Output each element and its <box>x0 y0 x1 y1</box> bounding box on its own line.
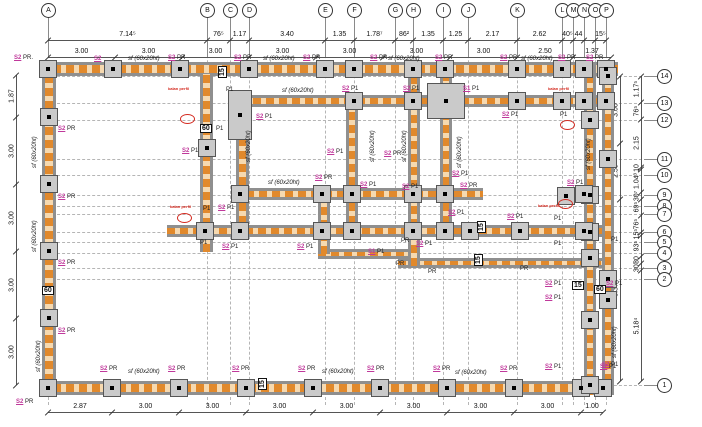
annotation-dark: P1 <box>226 87 233 93</box>
annotation-sf: sf (60x20ht) <box>263 56 295 62</box>
annotation-combo: S2 PR <box>384 151 401 157</box>
annotation-sf: sf (60x20ht) <box>521 56 553 62</box>
column-dot <box>47 182 51 186</box>
dim-value: 2.62 <box>533 31 547 38</box>
mark-series: S2 <box>182 148 189 154</box>
annotation-combo: S2 P1 <box>327 149 343 155</box>
annotation-combo: S2 P1 <box>402 184 418 190</box>
dim-value: 3.00 <box>276 48 290 55</box>
grid-line-G <box>395 20 396 405</box>
column-dot <box>205 146 209 150</box>
column-dot <box>515 99 519 103</box>
grid-leader-13 <box>644 103 657 104</box>
annotation-sf: sf (60x20ht) <box>402 130 408 162</box>
column-dot <box>238 113 242 117</box>
mark-series: S2 <box>403 86 410 92</box>
column-dot <box>411 67 415 71</box>
dim-line-right_b <box>641 76 642 381</box>
grid-bubble-I: I <box>436 3 451 18</box>
dim-line-bottom <box>48 412 603 413</box>
annotation-combo: S2 PR <box>315 175 332 181</box>
column-dot <box>244 386 248 390</box>
dim-value: 69⁵ <box>634 202 641 213</box>
annotation-sf: sf (60x20ht) <box>246 130 252 162</box>
column-dot <box>445 386 449 390</box>
revision-mark <box>180 114 195 124</box>
grid-bubble-G: G <box>388 3 403 18</box>
annotation-combo: S2 P1 <box>502 112 518 118</box>
revision-mark <box>177 213 192 223</box>
annotation-combo: S2 PR <box>460 183 477 189</box>
grid-bubble-K: K <box>510 3 525 18</box>
mark-series: S2 <box>168 55 175 61</box>
annotation-dark: P1 <box>203 206 210 212</box>
grid-line-2 <box>42 279 652 280</box>
grid-bubble-14: 14 <box>657 69 672 84</box>
annotation-combo: S2 PR <box>586 55 603 61</box>
annotation-box: 15 <box>258 378 267 390</box>
annotation-sf: sf (60x20ht) <box>268 180 300 186</box>
column-dot <box>588 256 592 260</box>
mark-series: S2 <box>298 366 305 372</box>
grid-leader-4 <box>644 253 657 254</box>
dim-value: 1.25 <box>449 31 463 38</box>
mark-series: S2 <box>360 182 367 188</box>
column-dot <box>46 386 50 390</box>
annotation-combo: S2 PR. <box>14 55 33 61</box>
dim-value: 76⁵ <box>634 105 641 116</box>
mark-series: S2 <box>460 183 467 189</box>
column-dot <box>47 115 51 119</box>
grid-bubble-2: 2 <box>657 272 672 287</box>
mark-series: S2 <box>435 55 442 61</box>
annotation-combo: S2 PR <box>58 260 75 266</box>
dim-value: 1.00 <box>585 403 599 410</box>
dim-value: 30⁷ <box>634 190 641 200</box>
grid-bubble-7: 7 <box>657 207 672 222</box>
dim-value: 3.00 <box>139 403 153 410</box>
column-dot <box>46 67 50 71</box>
dim-tick <box>600 409 606 415</box>
dim-value: 3.40 <box>280 31 294 38</box>
column-dot <box>588 318 592 322</box>
grid-bubble-A: A <box>41 3 56 18</box>
column-dot <box>443 67 447 71</box>
dim-value: 1.37 <box>585 48 599 55</box>
grid-bubble-D: D <box>242 3 257 18</box>
annotation-combo: S2 P1 <box>403 86 419 92</box>
annotation-combo: S2 PR <box>370 55 387 61</box>
column-dot <box>606 157 610 161</box>
annotation-sf: sf (60x20ht) <box>370 130 376 162</box>
annotation-pink: S2 <box>94 56 101 62</box>
column-dot <box>518 229 522 233</box>
beam <box>318 249 410 259</box>
annotation-combo: S2 P1 <box>545 295 561 301</box>
dim-tick <box>13 382 19 388</box>
annotation-box: 15 <box>477 221 486 233</box>
column-dot <box>350 229 354 233</box>
grid-leader-14 <box>644 76 657 77</box>
mark-series: S2 <box>14 55 21 61</box>
dim-value: 3.00 <box>410 48 424 55</box>
annotation-combo: S2 P1 <box>360 182 376 188</box>
column-dot <box>560 67 564 71</box>
annotation-combo: S2 P1 <box>256 114 272 120</box>
column-dot <box>512 386 516 390</box>
mark-series: S2 <box>232 366 239 372</box>
dim-value: 1.35 <box>333 31 347 38</box>
grid-bubble-11: 11 <box>657 152 672 167</box>
annotation-combo: S2 P1 <box>416 241 432 247</box>
dim-value: 93⁵ <box>634 240 641 251</box>
annotation-combo: S2 PR <box>58 194 75 200</box>
column-dot <box>604 99 608 103</box>
annotation-sf: sf (60x20ht) <box>282 88 314 94</box>
grid-leader-8 <box>644 206 657 207</box>
grid-line-C <box>230 20 231 405</box>
column-dot <box>560 99 564 103</box>
mark-series: S2 <box>16 399 23 405</box>
column-dot <box>411 192 415 196</box>
annotation-combo: S2 PR <box>303 55 320 61</box>
mark-series: S2 <box>168 366 175 372</box>
dim-value: 1.17⁵ <box>634 81 641 98</box>
dim-value: 2.50 <box>538 48 552 55</box>
dim-value: 2.15 <box>634 136 641 150</box>
column-dot <box>588 230 592 234</box>
annotation-combo: S2 PR <box>168 55 185 61</box>
annotation-dark: P1 <box>554 241 561 247</box>
column-dot <box>110 386 114 390</box>
grid-bubble-E: E <box>318 3 333 18</box>
column-dot <box>247 67 251 71</box>
column-dot <box>47 316 51 320</box>
annotation-combo: S2 PR <box>433 366 450 372</box>
annotation-dark: P1 <box>554 216 561 222</box>
mark-series: S2 <box>370 55 377 61</box>
mark-series: S2 <box>452 171 459 177</box>
annotation-combo: S2 P1 <box>182 148 198 154</box>
mark-series: S2 <box>218 205 225 211</box>
annotation-combo: S2 PR <box>435 55 452 61</box>
dim-value: 3.00 <box>340 403 354 410</box>
annotation-box: 15 <box>218 66 227 78</box>
column-dot <box>47 249 51 253</box>
annotation-combo: S2 P1 <box>545 281 561 287</box>
column-dot <box>177 386 181 390</box>
column-dot <box>178 67 182 71</box>
annotation-box: 15 <box>474 254 483 266</box>
grid-bubble-4: 4 <box>657 246 672 261</box>
dim-value: 1.17 <box>233 31 247 38</box>
mark-series: S2 <box>448 210 455 216</box>
dim-value: 3.00 <box>9 278 16 292</box>
column-dot <box>378 386 382 390</box>
grid-leader-10 <box>644 175 657 176</box>
beam <box>40 381 612 395</box>
column-dot <box>352 99 356 103</box>
dim-value: 1.87 <box>9 89 16 103</box>
dim-value: 3.00 <box>75 48 89 55</box>
dim-value: 44 <box>575 31 583 38</box>
mark-series: S2 <box>315 175 322 181</box>
mark-series: S2 <box>545 295 552 301</box>
column-dot <box>111 67 115 71</box>
annotation-sf: sf (60x20ht) <box>32 220 38 252</box>
grid-bubble-10: 10 <box>657 168 672 183</box>
beam <box>346 95 358 237</box>
dim-value: 3.00 <box>9 144 16 158</box>
annotation-combo: S2 P1 <box>222 244 238 250</box>
grid-leader-9 <box>644 195 657 196</box>
annotation-sf: sf (60x20ht) <box>128 369 160 375</box>
dim-value: 3.00 <box>407 403 421 410</box>
grid-line-J <box>468 20 469 405</box>
formwork-plan-canvas: ABCDEFGHIJKLMNOP14131211109876543217.14⁵… <box>0 0 702 427</box>
annotation-combo: S2 PR <box>500 366 517 372</box>
annotation-combo: S2 P1 <box>507 214 523 220</box>
dim-value: 2.87 <box>73 403 87 410</box>
annotation-dark: P1 <box>216 126 223 132</box>
dim-value: 7.14⁵ <box>119 31 136 38</box>
dim-value: 15⁵ <box>634 228 641 239</box>
grid-bubble-13: 13 <box>657 96 672 111</box>
mark-series: S2 <box>384 151 391 157</box>
mark-series: S2 <box>58 126 65 132</box>
annotation-combo: S2 P1 <box>218 205 234 211</box>
column-dot <box>582 99 586 103</box>
dim-value: 2.17 <box>486 31 500 38</box>
mark-series: S2 <box>606 281 613 287</box>
grid-line-M <box>573 20 574 405</box>
grid-bubble-1: 1 <box>657 378 672 393</box>
column-dot <box>444 99 448 103</box>
annotation-combo: S2 PR <box>16 399 33 405</box>
annotation-sf: sf (60x20ht) <box>612 326 618 358</box>
revision-mark <box>558 199 573 209</box>
dim-value: 3.00 <box>9 211 16 225</box>
mark-series: S2 <box>402 184 409 190</box>
column-dot <box>443 192 447 196</box>
annotation-red: kalan perfil <box>170 205 191 209</box>
column-dot <box>604 67 608 71</box>
dim-value: 3.00 <box>206 403 220 410</box>
column-dot <box>443 229 447 233</box>
column-dot <box>588 193 592 197</box>
annotation-sf: sf (60x20ht) <box>388 56 420 62</box>
grid-bubble-P: P <box>599 3 614 18</box>
annotation-combo: S2 PR <box>100 366 117 372</box>
mark-series: S2 <box>327 149 334 155</box>
annotation-box: 60 <box>42 286 54 295</box>
mark-series: S2 <box>545 364 552 370</box>
beam <box>398 258 606 268</box>
annotation-dark: PR <box>401 238 409 244</box>
annotation-combo: S2 PR <box>232 366 249 372</box>
mark-series: S2 <box>586 55 593 61</box>
dim-line-left <box>16 75 17 385</box>
dim-value: 3.00 <box>209 48 223 55</box>
annotation-box: 60 <box>594 285 606 294</box>
grid-line-3 <box>42 268 652 269</box>
dim-value: 3.00 <box>273 403 287 410</box>
column-dot <box>350 192 354 196</box>
annotation-dark: P1 <box>611 237 618 243</box>
column-dot <box>238 192 242 196</box>
grid-leader-2 <box>644 279 657 280</box>
dim-line-top1 <box>48 40 606 41</box>
grid-leader-5 <box>644 242 657 243</box>
grid-leader-12 <box>644 120 657 121</box>
column-dot <box>238 229 242 233</box>
mark-series: S2 <box>433 366 440 372</box>
annotation-combo: S2 PR <box>558 55 575 61</box>
annotation-red: kalan perfil <box>548 87 569 91</box>
annotation-dark: PR <box>428 269 436 275</box>
grid-leader-6 <box>644 232 657 233</box>
column-dot <box>468 229 472 233</box>
dim-value: 1.35 <box>421 31 435 38</box>
annotation-red: kalan perfil <box>538 204 559 208</box>
annotation-combo: S2 PR <box>298 366 315 372</box>
column-dot <box>582 229 586 233</box>
dim-value: 3.00 <box>477 48 491 55</box>
mark-series: S2 <box>58 328 65 334</box>
column-dot <box>411 229 415 233</box>
annotation-combo: S1 P1 <box>368 249 384 255</box>
dim-value: 3.00 <box>9 345 16 359</box>
mark-series: S2 <box>367 366 374 372</box>
mark-series: S2 <box>234 55 241 61</box>
grid-bubble-B: B <box>200 3 215 18</box>
annotation-combo: S2 P1 <box>297 244 313 250</box>
dim-value: 15⁵ <box>595 31 606 38</box>
annotation-combo: S2 P1 <box>606 281 622 287</box>
column-dot <box>323 67 327 71</box>
grid-bubble-C: C <box>223 3 238 18</box>
mark-series: S2 <box>222 244 229 250</box>
dim-value: 86² <box>399 31 409 38</box>
annotation-combo: S2 PR <box>58 328 75 334</box>
grid-leader-1 <box>644 385 657 386</box>
annotation-combo: S2 PR <box>500 55 517 61</box>
column-dot <box>411 99 415 103</box>
dim-line-right_a <box>620 76 621 381</box>
annotation-sf: sf (60x20ht) <box>32 136 38 168</box>
annotation-combo: S2 P1 <box>448 210 464 216</box>
dim-value: 1.04³ <box>634 173 641 189</box>
column-dot <box>588 383 592 387</box>
dim-value: 30¹ <box>634 261 641 271</box>
mark-series: S2 <box>507 214 514 220</box>
mark-series: S2 <box>297 244 304 250</box>
annotation-combo: S2 PR <box>234 55 251 61</box>
dim-value: 3.00 <box>474 403 488 410</box>
annotation-combo: S2 P1 <box>600 364 616 370</box>
annotation-sf: sf (60x20ht) <box>455 370 487 376</box>
mark-series: S1 <box>368 249 375 255</box>
column-dot <box>311 386 315 390</box>
annotation-combo: S2 P1 <box>342 86 358 92</box>
annotation-sf: sf (60x20ht) <box>36 340 42 372</box>
column-dot <box>579 386 583 390</box>
dim-value: 5.18⁴ <box>634 317 641 334</box>
mark-series: S2 <box>500 55 507 61</box>
annotation-combo: S2 P1 <box>452 171 468 177</box>
annotation-sf: sf (60x20ht) <box>457 136 463 168</box>
column-dot <box>515 67 519 71</box>
column-dot <box>203 229 207 233</box>
grid-leader-11 <box>644 159 657 160</box>
annotation-combo: S2 P1 <box>545 364 561 370</box>
mark-series: S2 <box>256 114 263 120</box>
mark-series: S2 <box>58 260 65 266</box>
grid-bubble-H: H <box>406 3 421 18</box>
dim-value: 3.00 <box>343 48 357 55</box>
mark-series: S2 <box>416 241 423 247</box>
annotation-combo: S1 P1 <box>463 86 479 92</box>
mark-series: S2 <box>58 194 65 200</box>
grid-leader-7 <box>644 214 657 215</box>
annotation-box: 60 <box>200 124 212 133</box>
column-dot <box>588 118 592 122</box>
column-dot <box>320 192 324 196</box>
dim-value: 1.78⁷ <box>366 31 382 38</box>
annotation-dark: P1 <box>200 240 207 246</box>
mark-series: S2 <box>567 180 574 186</box>
annotation-combo: S2 PR <box>168 366 185 372</box>
dim-tick <box>617 378 623 384</box>
annotation-dark: PR <box>396 261 404 267</box>
annotation-sf: sf (60x20ht) <box>128 56 160 62</box>
column-dot <box>606 74 610 78</box>
column-dot <box>564 194 568 198</box>
dim-value: 40⁵ <box>562 31 573 38</box>
grid-bubble-12: 12 <box>657 113 672 128</box>
annotation-combo: S2 P1 <box>567 180 583 186</box>
mark-series: S2 <box>502 112 509 118</box>
annotation-sf: sf (60x20ht) <box>586 138 592 170</box>
dim-value: 76⁵ <box>634 218 641 229</box>
mark-series: S2 <box>545 281 552 287</box>
annotation-box: 15 <box>572 281 584 290</box>
mark-series: S1 <box>463 86 470 92</box>
mark-series: S2 <box>100 366 107 372</box>
annotation-combo: S2 PR <box>58 126 75 132</box>
mark-series: S2 <box>342 86 349 92</box>
annotation-red: kalan perfil <box>168 87 189 91</box>
dim-value: 3.00 <box>142 48 156 55</box>
revision-mark <box>560 120 575 130</box>
dim-value: 3.00 <box>541 403 555 410</box>
column-dot <box>582 192 586 196</box>
grid-bubble-J: J <box>461 3 476 18</box>
column-dot <box>352 67 356 71</box>
column-dot <box>606 298 610 302</box>
column-dot <box>320 229 324 233</box>
annotation-dark: P1 <box>560 112 567 118</box>
column-dot <box>582 67 586 71</box>
annotation-dark: PR <box>520 266 528 272</box>
column-dot <box>601 386 605 390</box>
mark-series: S2 <box>558 55 565 61</box>
annotation-sf: sf (60x20ht) <box>322 369 354 375</box>
annotation-combo: S2 PR <box>367 366 384 372</box>
mark-series: S2 <box>303 55 310 61</box>
grid-leader-3 <box>644 268 657 269</box>
mark-series: S2 <box>500 366 507 372</box>
